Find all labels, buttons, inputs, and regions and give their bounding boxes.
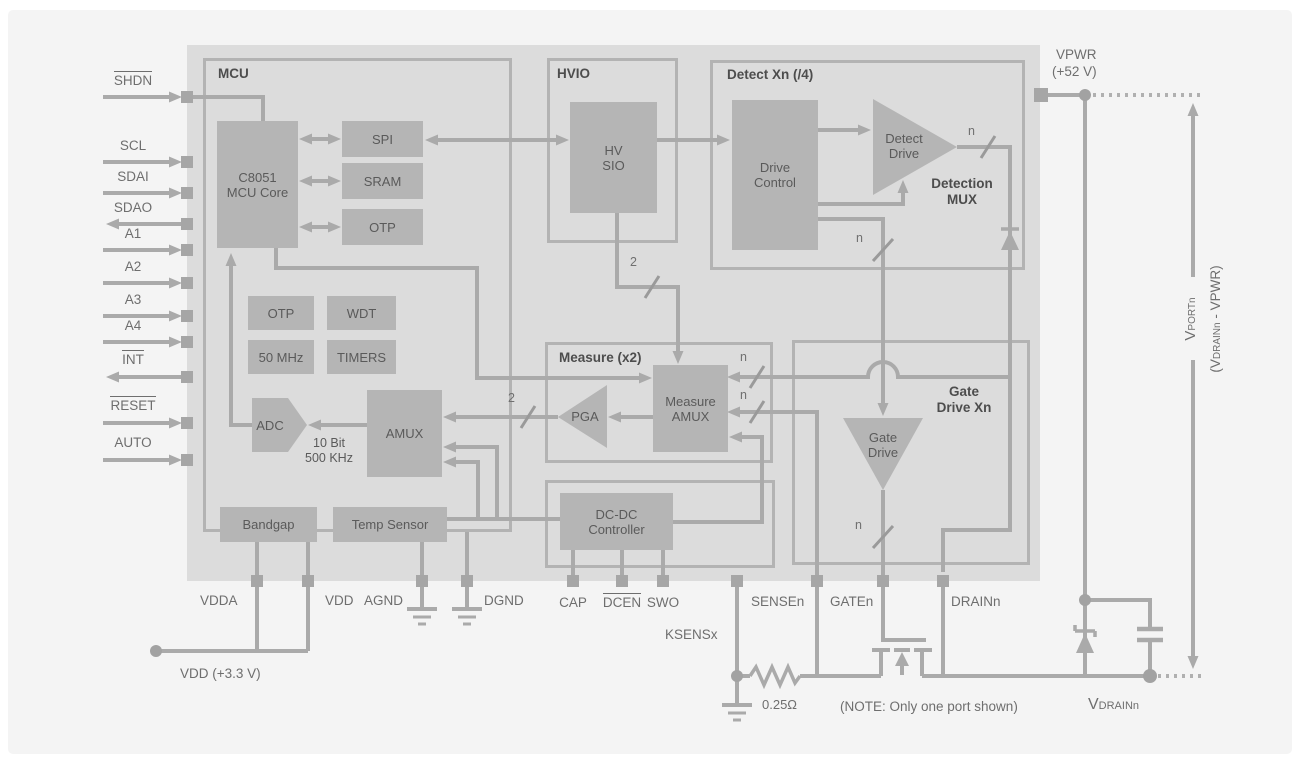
pin-label-sdai: SDAI bbox=[101, 169, 165, 185]
pin-ksensx bbox=[731, 575, 743, 587]
pin-label-int: INT bbox=[101, 352, 165, 368]
vportn-label: VPORTn bbox=[1183, 219, 1201, 419]
detection-mux-label: DetectionMUX bbox=[902, 176, 1022, 208]
bus-n-detect-out: n bbox=[968, 124, 975, 138]
pin-reset bbox=[181, 417, 193, 429]
pin-a4 bbox=[181, 336, 193, 348]
block-timers: TIMERS bbox=[327, 340, 396, 374]
pin-sensen bbox=[811, 575, 823, 587]
pin-label-vdd: VDD bbox=[325, 593, 354, 609]
block-temp-sensor: Temp Sensor bbox=[333, 507, 447, 542]
adc-note: 10 Bit500 KHz bbox=[295, 436, 363, 466]
pin-gaten bbox=[877, 575, 889, 587]
vpwr-voltage-label: (+52 V) bbox=[1052, 64, 1097, 80]
bus-2-pga: 2 bbox=[508, 391, 515, 405]
block-wdt: WDT bbox=[327, 296, 396, 330]
detect-drive-label: DetectDrive bbox=[874, 131, 934, 161]
pin-shdn bbox=[181, 91, 193, 103]
detect-section-label: Detect Xn (/4) bbox=[727, 67, 813, 83]
block-amux: AMUX bbox=[367, 390, 442, 477]
pin-label-cap: CAP bbox=[553, 595, 593, 611]
pin-label-a4: A4 bbox=[101, 318, 165, 334]
block-sram: SRAM bbox=[342, 163, 423, 199]
pin-label-reset: RESET bbox=[101, 398, 165, 414]
pin-dgnd bbox=[461, 575, 473, 587]
block-dcdc-controller: DC-DCController bbox=[560, 493, 673, 550]
dgnd-ground-icon bbox=[452, 609, 482, 624]
pin-sdao bbox=[181, 218, 193, 230]
pin-a1 bbox=[181, 244, 193, 256]
pin-label-vdda: VDDA bbox=[200, 593, 238, 609]
bus-n-sense: n bbox=[740, 388, 747, 402]
pin-label-agnd: AGND bbox=[364, 593, 403, 609]
pin-label-gaten: GATEn bbox=[830, 594, 873, 610]
pin-scl bbox=[181, 156, 193, 168]
block-otp-small: OTP bbox=[248, 296, 314, 330]
pin-label-a2: A2 bbox=[101, 259, 165, 275]
block-mcu-core: C8051 MCU Core bbox=[217, 121, 298, 248]
pin-int bbox=[181, 371, 193, 383]
pin-swo bbox=[657, 575, 669, 587]
block-50mhz: 50 MHz bbox=[248, 340, 314, 374]
pin-vpwr bbox=[1034, 88, 1048, 102]
block-spi: SPI bbox=[342, 121, 423, 157]
pin-vdda bbox=[251, 575, 263, 587]
pin-agnd bbox=[416, 575, 428, 587]
bus-n-gate: n bbox=[855, 518, 862, 532]
pin-sdai bbox=[181, 187, 193, 199]
block-diagram: C8051 MCU Core SPI SRAM OTP OTP WDT 50 M… bbox=[0, 0, 1300, 764]
mcu-section-label: MCU bbox=[218, 66, 249, 82]
pin-label-scl: SCL bbox=[101, 138, 165, 154]
gate-section-label: GateDrive Xn bbox=[900, 384, 1028, 416]
pin-label-ksensx: KSENSx bbox=[665, 627, 718, 643]
vdrain-minus-vpwr-label: (VDRAINn - VPWR) bbox=[1208, 219, 1226, 419]
pin-a2 bbox=[181, 277, 193, 289]
mcu-core-label-2: MCU Core bbox=[227, 185, 288, 200]
ksens-ground-icon bbox=[722, 705, 752, 720]
pin-label-dgnd: DGND bbox=[484, 593, 524, 609]
shunt-resistor-symbol bbox=[750, 667, 800, 685]
vdrainn-label: VDRAINn bbox=[1088, 697, 1139, 714]
pin-label-a3: A3 bbox=[101, 292, 165, 308]
adc-label: ADC bbox=[248, 418, 292, 433]
pin-label-shdn: SHDN bbox=[101, 73, 165, 89]
measure-section-label: Measure (x2) bbox=[559, 350, 642, 366]
block-bandgap: Bandgap bbox=[220, 507, 317, 542]
pin-label-sensen: SENSEn bbox=[751, 594, 804, 610]
bus-2-hvsio: 2 bbox=[630, 255, 637, 269]
pin-label-auto: AUTO bbox=[101, 435, 165, 451]
pin-vdd bbox=[302, 575, 314, 587]
pin-cap bbox=[567, 575, 579, 587]
block-otp-top: OTP bbox=[342, 209, 423, 245]
pin-a3 bbox=[181, 310, 193, 322]
gate-drive-label: GateDrive bbox=[853, 430, 913, 460]
pin-label-swo: SWO bbox=[643, 595, 683, 611]
pin-label-sdao: SDAO bbox=[101, 200, 165, 216]
detection-diode bbox=[1001, 229, 1019, 250]
agnd-ground-icon bbox=[407, 609, 437, 624]
block-drive-control: DriveControl bbox=[732, 100, 818, 250]
pin-drainn bbox=[937, 575, 949, 587]
vdd-terminal bbox=[150, 645, 162, 657]
pga-label: PGA bbox=[563, 409, 607, 424]
bus-n-drain-sense: n bbox=[740, 350, 747, 364]
pin-dcen bbox=[616, 575, 628, 587]
one-port-note: (NOTE: Only one port shown) bbox=[840, 699, 1018, 715]
pin-label-drainn: DRAINn bbox=[951, 594, 1001, 610]
pin-label-a1: A1 bbox=[101, 226, 165, 242]
pin-label-dcen: DCEN bbox=[600, 595, 644, 611]
pin-auto bbox=[181, 454, 193, 466]
bus-n-detect-bus: n bbox=[856, 231, 863, 245]
mcu-core-label-1: C8051 bbox=[238, 170, 276, 185]
block-hv-sio: HVSIO bbox=[570, 102, 657, 213]
port-capacitor bbox=[1137, 629, 1163, 640]
vdd-rail-label: VDD (+3.3 V) bbox=[180, 666, 261, 682]
shunt-resistor-label: 0.25Ω bbox=[762, 697, 797, 713]
vpwr-label: VPWR bbox=[1056, 47, 1097, 63]
hvio-section-label: HVIO bbox=[557, 66, 590, 82]
block-measure-amux: MeasureAMUX bbox=[653, 365, 728, 452]
